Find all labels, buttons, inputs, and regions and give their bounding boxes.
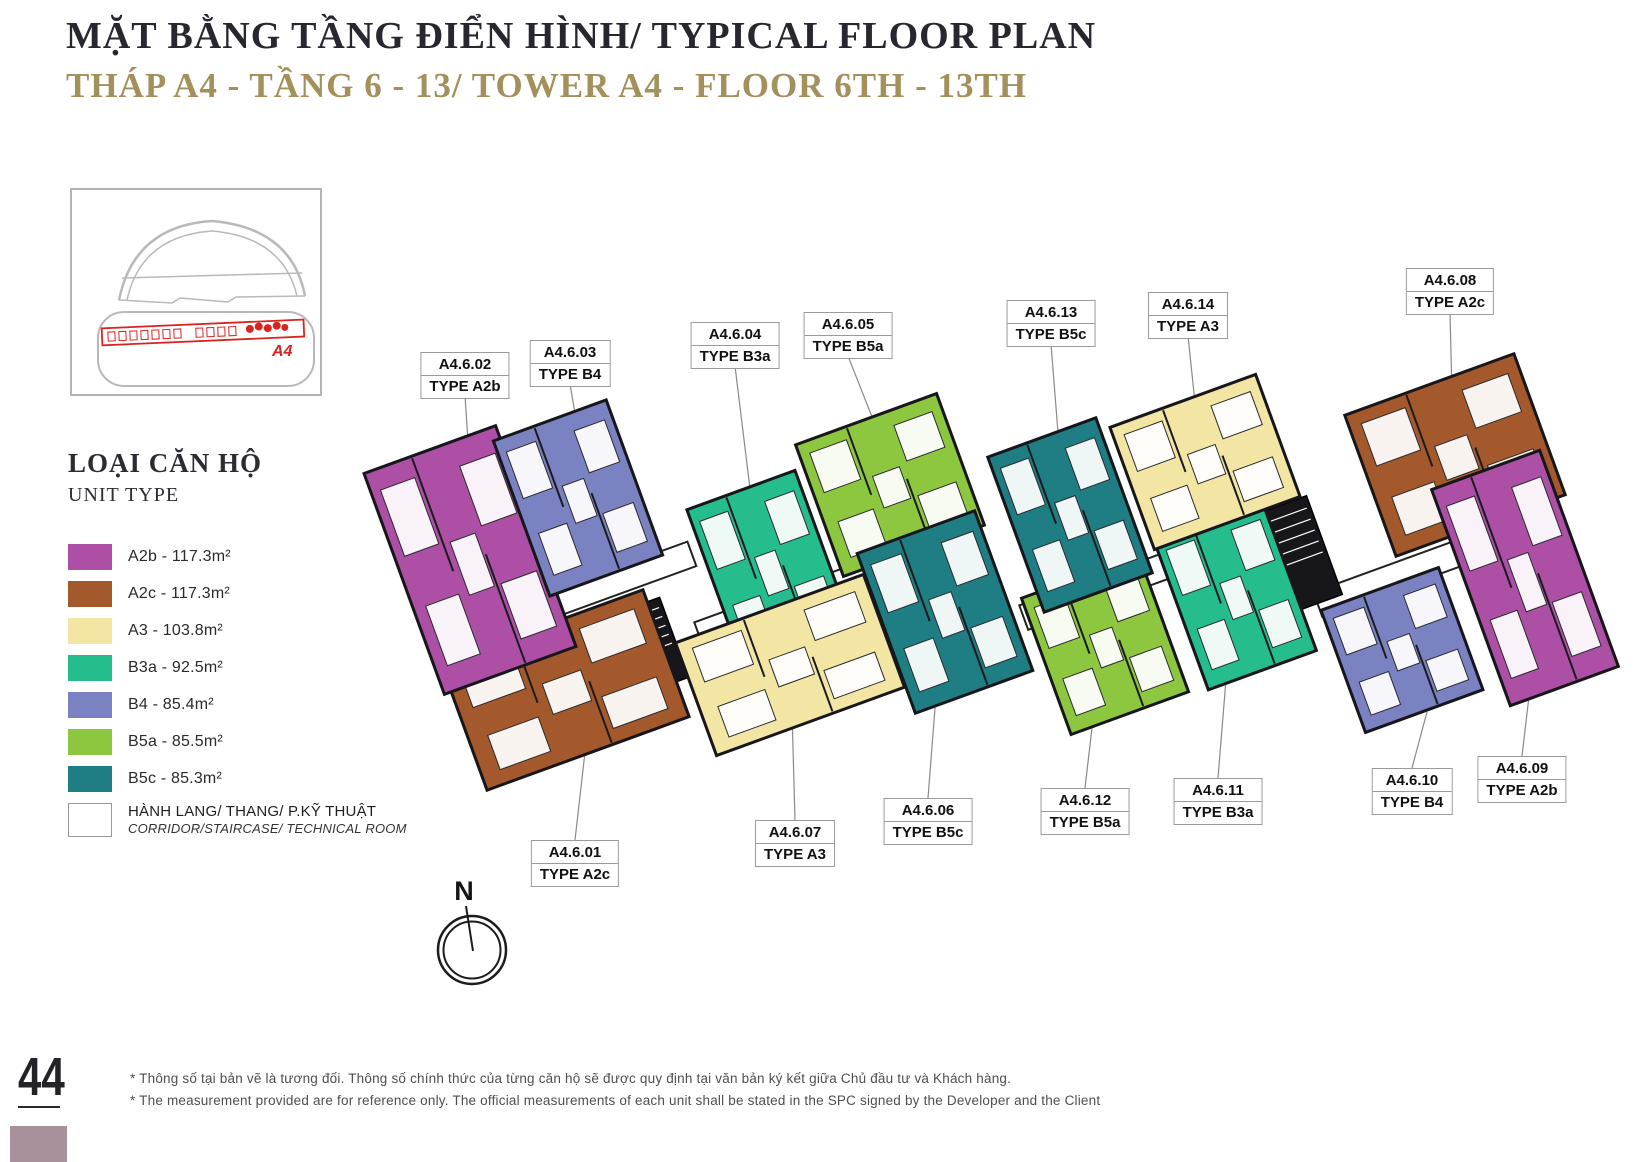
page-number: 44: [18, 1046, 65, 1108]
brochure-page: MẶT BẰNG TẦNG ĐIỂN HÌNH/ TYPICAL FLOOR P…: [0, 0, 1643, 1162]
floor-plan: N: [0, 0, 1643, 1162]
leader-line-A4.6.10: [1412, 712, 1427, 768]
unit-A4.6.07: [676, 574, 905, 755]
compass-north-label: N: [454, 876, 474, 906]
north-compass-icon: N: [438, 876, 506, 984]
corner-decoration: [10, 1126, 67, 1162]
footnote-english: * The measurement provided are for refer…: [130, 1093, 1100, 1108]
leader-line-A4.6.04: [735, 366, 752, 505]
leader-line-A4.6.01: [575, 752, 585, 840]
page-number-rule: [18, 1106, 60, 1108]
footnote-vietnamese: * Thông số tại bản vẽ là tương đối. Thôn…: [130, 1071, 1011, 1086]
